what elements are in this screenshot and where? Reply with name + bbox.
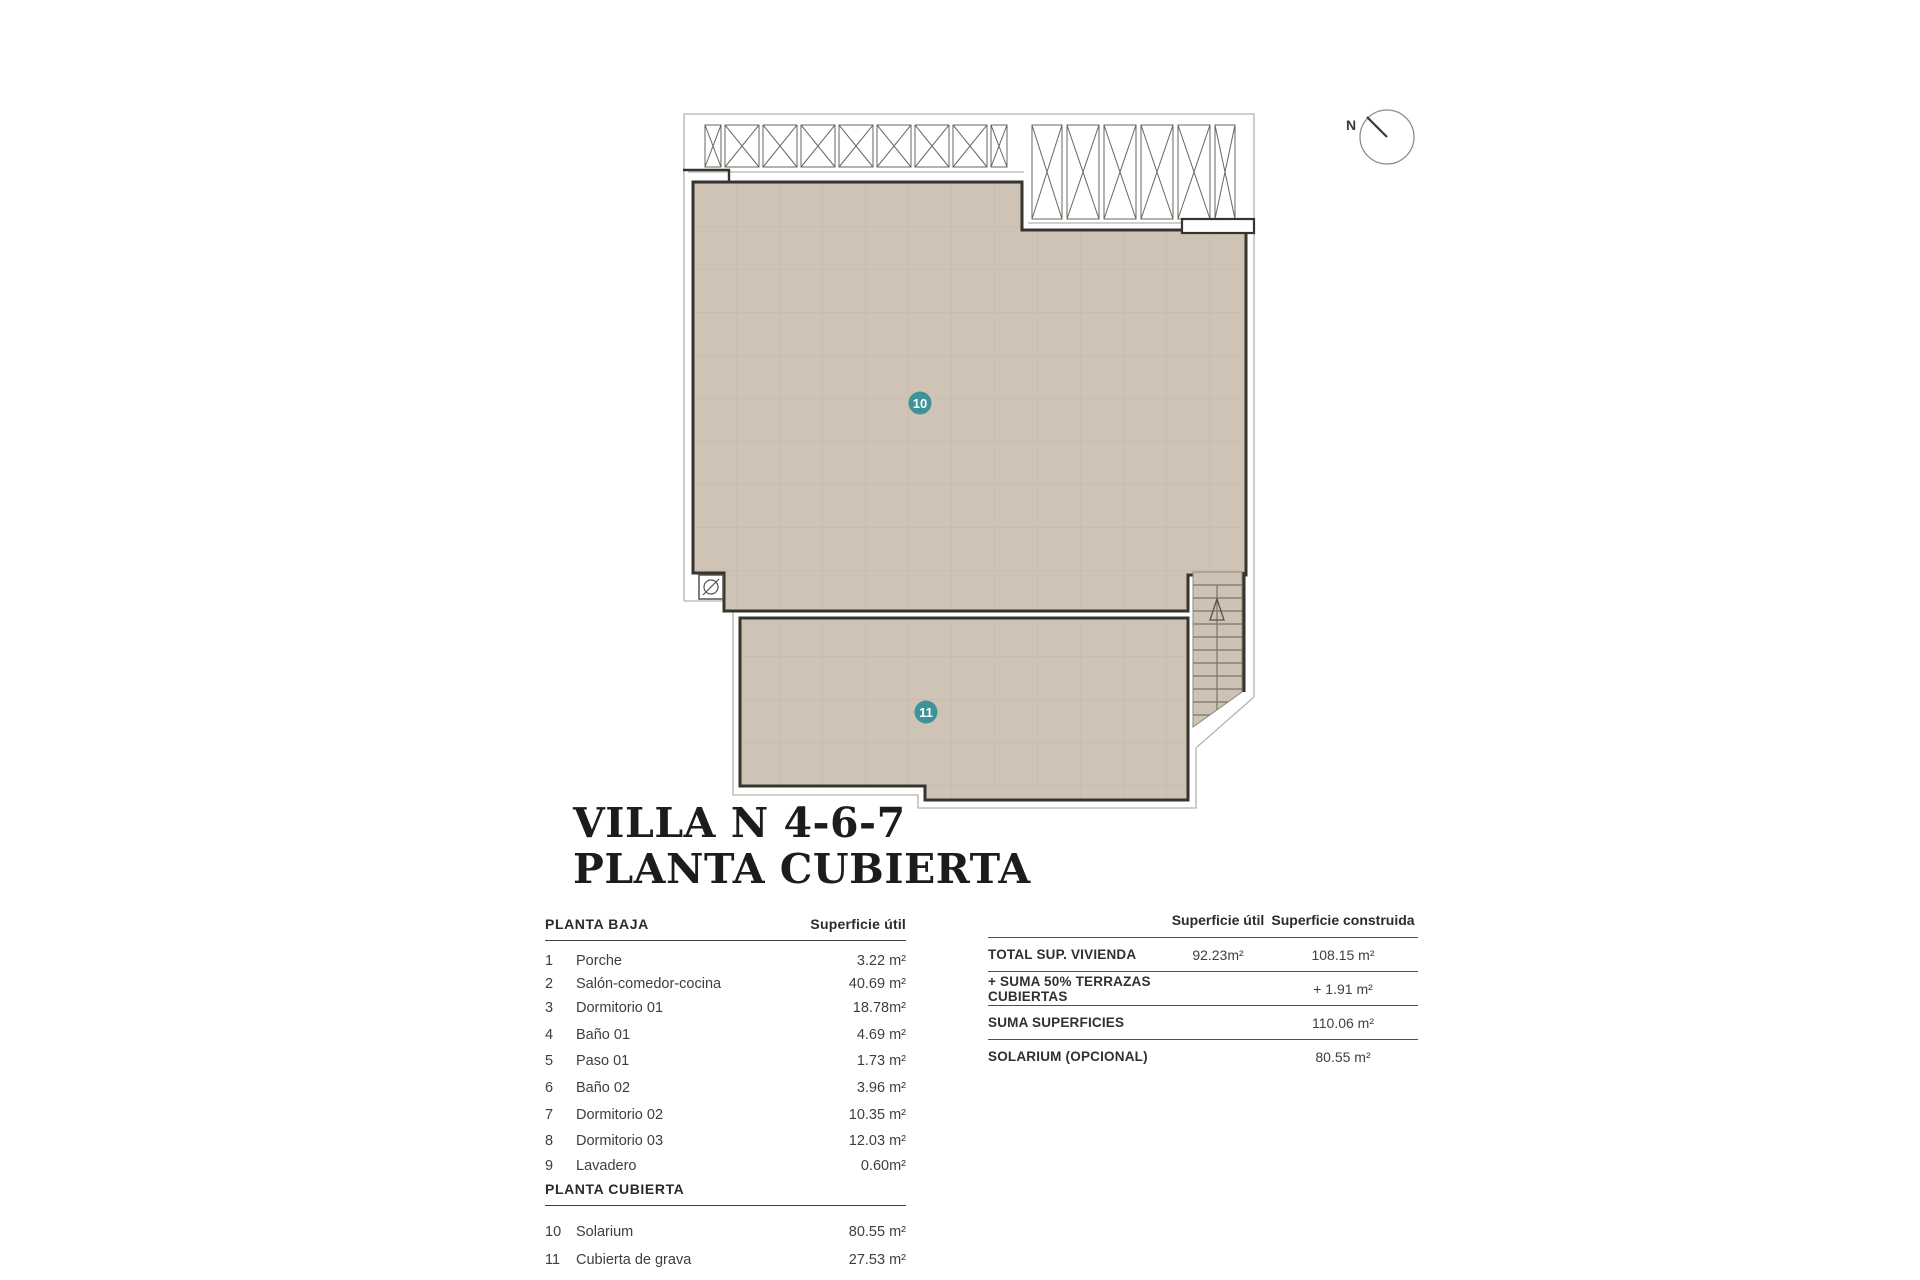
row-label: Baño 01 (576, 1027, 857, 1043)
row-label: Baño 02 (576, 1080, 857, 1096)
row-value: 10.35 m² (849, 1107, 906, 1123)
column-header: Superficie útil (810, 916, 906, 932)
table-row: + SUMA 50% TERRAZAS CUBIERTAS + 1.91 m² (988, 972, 1418, 1006)
row-value: 18.78m² (853, 1000, 906, 1016)
column-header-util: Superficie útil (1168, 912, 1268, 928)
plan-title: VILLA N 4-6-7 PLANTA CUBIERTA (573, 800, 1031, 892)
stairs (1193, 572, 1244, 727)
row-label: + SUMA 50% TERRAZAS CUBIERTAS (988, 974, 1168, 1004)
floor-plan: 10 11 N (0, 0, 1920, 1280)
row-number: 7 (545, 1107, 576, 1123)
drain-icon (699, 575, 723, 599)
planta-baja-header: PLANTA BAJA Superficie útil (545, 916, 906, 941)
table-row: TOTAL SUP. VIVIENDA 92.23m² 108.15 m² (988, 938, 1418, 972)
row-label: SUMA SUPERFICIES (988, 1015, 1168, 1030)
table-row: 1 Porche 3.22 m² (545, 949, 906, 972)
row-number: 3 (545, 1000, 576, 1016)
compass-north-label: N (1346, 117, 1356, 133)
row-number: 8 (545, 1133, 576, 1149)
row-label: Dormitorio 03 (576, 1133, 849, 1149)
row-label: Cubierta de grava (576, 1252, 849, 1268)
row-value-construida: 108.15 m² (1268, 947, 1418, 963)
roof-area-11 (740, 618, 1188, 800)
planta-baja-rows: 1 Porche 3.22 m² 2 Salón-comedor-cocina … (545, 941, 906, 1178)
table-row: 8 Dormitorio 03 12.03 m² (545, 1128, 906, 1155)
room-badge-11: 11 (915, 701, 938, 724)
row-value-construida: 80.55 m² (1268, 1049, 1418, 1065)
row-value: 3.96 m² (857, 1080, 906, 1096)
planta-cubierta-header: PLANTA CUBIERTA (545, 1181, 906, 1206)
row-value: 40.69 m² (849, 976, 906, 992)
section-title: PLANTA BAJA (545, 916, 649, 932)
row-value-construida: + 1.91 m² (1268, 981, 1418, 997)
row-label: Lavadero (576, 1158, 861, 1174)
row-label: Paso 01 (576, 1053, 857, 1069)
table-row: 7 Dormitorio 02 10.35 m² (545, 1101, 906, 1128)
row-label: Dormitorio 01 (576, 1000, 853, 1016)
row-number: 4 (545, 1027, 576, 1043)
table-row: 6 Baño 02 3.96 m² (545, 1075, 906, 1102)
compass: N (1346, 110, 1414, 164)
row-value: 1.73 m² (857, 1053, 906, 1069)
surfaces-table-left: PLANTA BAJA Superficie útil 1 Porche 3.2… (545, 916, 906, 1274)
row-label: Porche (576, 953, 857, 969)
row-label: Salón-comedor-cocina (576, 976, 849, 992)
plan-title-line2: PLANTA CUBIERTA (573, 846, 1031, 892)
row-number: 9 (545, 1158, 576, 1174)
row-number: 11 (545, 1252, 576, 1268)
table-row: 9 Lavadero 0.60m² (545, 1155, 906, 1178)
table-row: SOLARIUM (OPCIONAL) 80.55 m² (988, 1040, 1418, 1073)
section-title: PLANTA CUBIERTA (545, 1181, 684, 1197)
row-value: 0.60m² (861, 1158, 906, 1174)
compass-needle (1367, 117, 1387, 137)
column-header-construida: Superficie construida (1268, 912, 1418, 928)
table-row: 3 Dormitorio 01 18.78m² (545, 995, 906, 1022)
table-row: 2 Salón-comedor-cocina 40.69 m² (545, 972, 906, 995)
table-row: 11 Cubierta de grava 27.53 m² (545, 1246, 906, 1274)
row-number: 10 (545, 1224, 576, 1240)
row-label: TOTAL SUP. VIVIENDA (988, 947, 1168, 962)
table-row: 5 Paso 01 1.73 m² (545, 1048, 906, 1075)
roof-area-10 (693, 182, 1246, 611)
table-row: 4 Baño 01 4.69 m² (545, 1022, 906, 1049)
planta-cubierta-rows: 10 Solarium 80.55 m² 11 Cubierta de grav… (545, 1206, 906, 1274)
row-value: 80.55 m² (849, 1224, 906, 1240)
row-value: 4.69 m² (857, 1027, 906, 1043)
page: 10 11 N VILLA N 4-6-7 PLANTA CUBIERTA PL… (0, 0, 1920, 1280)
row-number: 1 (545, 953, 576, 969)
row-value: 3.22 m² (857, 953, 906, 969)
row-number: 6 (545, 1080, 576, 1096)
row-value-construida: 110.06 m² (1268, 1015, 1418, 1031)
totals-table-header: Superficie útil Superficie construida (988, 912, 1418, 938)
row-label: SOLARIUM (OPCIONAL) (988, 1049, 1168, 1064)
table-row: SUMA SUPERFICIES 110.06 m² (988, 1006, 1418, 1040)
row-label: Solarium (576, 1224, 849, 1240)
row-value-util: 92.23m² (1168, 947, 1268, 963)
totals-table: Superficie útil Superficie construida TO… (988, 912, 1418, 1073)
table-row: 10 Solarium 80.55 m² (545, 1218, 906, 1246)
row-number: 2 (545, 976, 576, 992)
row-number: 5 (545, 1053, 576, 1069)
row-value: 12.03 m² (849, 1133, 906, 1149)
row-value: 27.53 m² (849, 1252, 906, 1268)
room-badge-10: 10 (909, 392, 932, 415)
room-badge-label: 10 (913, 396, 927, 411)
row-label: Dormitorio 02 (576, 1107, 849, 1123)
plan-title-line1: VILLA N 4-6-7 (573, 800, 1031, 846)
room-badge-label: 11 (919, 705, 933, 720)
